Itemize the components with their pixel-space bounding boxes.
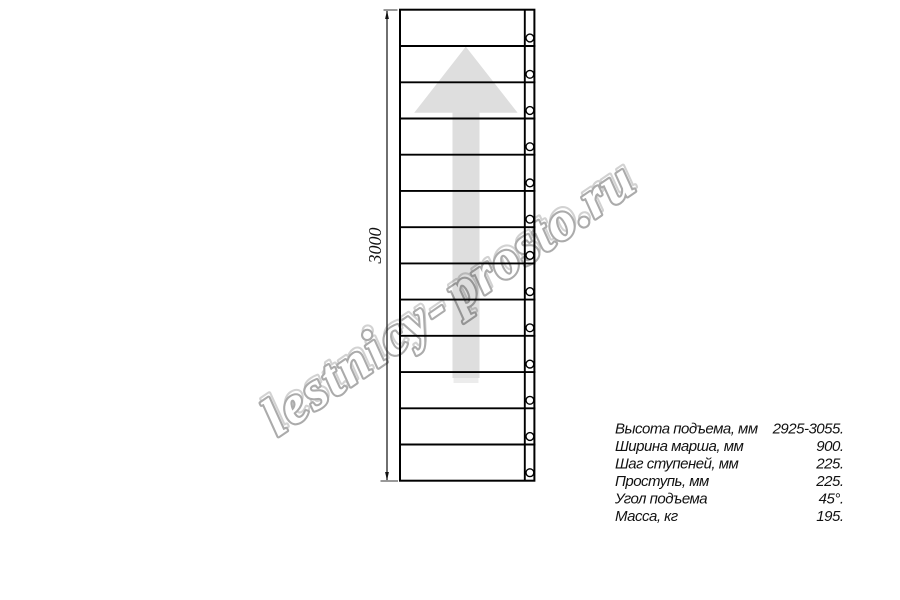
- svg-text:195.: 195.: [816, 508, 843, 525]
- svg-text:45°.: 45°.: [819, 490, 844, 507]
- svg-text:Высота подъема, мм: Высота подъема, мм: [615, 420, 758, 437]
- svg-text:Проступь, мм: Проступь, мм: [615, 473, 709, 490]
- svg-text:Угол подъема: Угол подъема: [614, 490, 707, 507]
- svg-text:225.: 225.: [815, 473, 843, 490]
- svg-text:Масса, кг: Масса, кг: [615, 508, 679, 525]
- svg-text:lestnicy-prosto.ru: lestnicy-prosto.ru: [250, 149, 646, 447]
- svg-text:2925-3055.: 2925-3055.: [772, 420, 844, 437]
- svg-text:3000: 3000: [365, 228, 385, 265]
- svg-text:Шаг ступеней, мм: Шаг ступеней, мм: [615, 455, 739, 472]
- svg-text:900.: 900.: [816, 438, 843, 455]
- svg-text:225.: 225.: [815, 455, 843, 472]
- svg-text:Ширина марша, мм: Ширина марша, мм: [615, 438, 743, 455]
